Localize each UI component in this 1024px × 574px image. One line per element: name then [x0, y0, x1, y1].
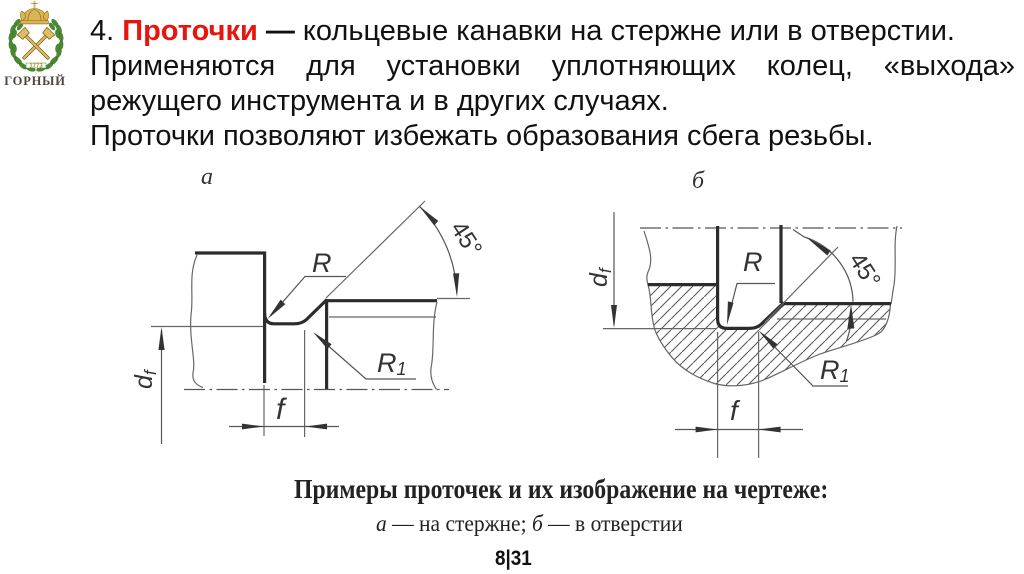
- svg-text:45°: 45°: [843, 248, 885, 293]
- svg-text:R1: R1: [820, 355, 850, 386]
- svg-text:R: R: [743, 247, 763, 277]
- svg-text:R1: R1: [377, 348, 407, 379]
- svg-text:df: df: [585, 266, 615, 287]
- svg-text:а: а: [201, 164, 213, 190]
- svg-text:df: df: [130, 368, 160, 389]
- svg-text:45°: 45°: [445, 216, 487, 261]
- svg-text:f: f: [730, 395, 741, 426]
- svg-text:f: f: [276, 393, 287, 426]
- svg-text:R: R: [312, 248, 332, 278]
- svg-text:б: б: [692, 168, 705, 194]
